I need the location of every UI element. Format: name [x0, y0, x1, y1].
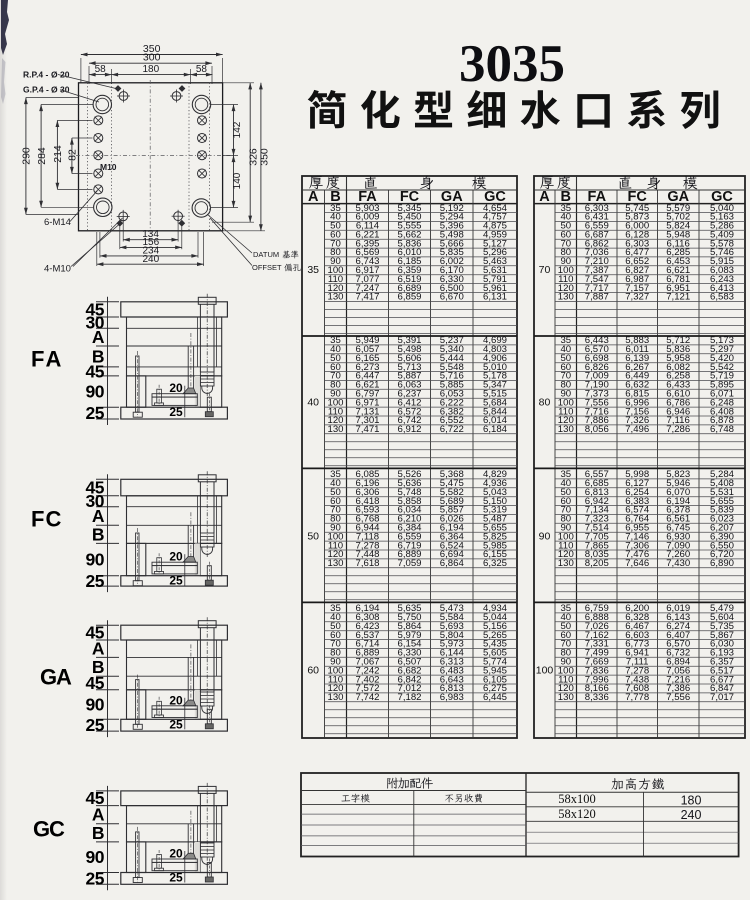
svg-text:8,336: 8,336: [585, 692, 609, 703]
svg-text:G: G: [40, 665, 57, 690]
svg-text:58x120: 58x120: [558, 807, 596, 821]
svg-text:290: 290: [21, 147, 33, 165]
svg-text:R.P.4 -: R.P.4 -: [23, 70, 49, 80]
svg-text:7,059: 7,059: [397, 558, 421, 569]
svg-text:7,646: 7,646: [625, 558, 649, 569]
svg-text:90: 90: [86, 847, 105, 867]
svg-text:25: 25: [169, 871, 183, 885]
svg-text:130: 130: [327, 558, 343, 569]
svg-text:G: G: [33, 817, 50, 842]
svg-text:130: 130: [327, 292, 343, 303]
svg-text:B: B: [92, 823, 104, 843]
svg-text:6,890: 6,890: [710, 558, 734, 569]
svg-text:7,887: 7,887: [585, 292, 609, 303]
svg-text:7,496: 7,496: [625, 424, 649, 435]
svg-text:A: A: [92, 506, 105, 526]
svg-text:25: 25: [86, 715, 105, 735]
svg-text:6,445: 6,445: [483, 692, 507, 703]
svg-text:82: 82: [67, 149, 79, 161]
svg-text:A: A: [539, 189, 550, 205]
svg-text:6,325: 6,325: [483, 558, 507, 569]
svg-text:214: 214: [52, 145, 64, 163]
svg-text:7,430: 7,430: [666, 558, 690, 569]
svg-text:90: 90: [86, 550, 105, 570]
svg-text:60: 60: [307, 665, 319, 677]
svg-text:F: F: [31, 507, 44, 532]
svg-text:7,556: 7,556: [666, 692, 690, 703]
svg-text:130: 130: [558, 692, 574, 703]
svg-text:6,859: 6,859: [397, 292, 421, 303]
svg-text:25: 25: [169, 574, 183, 588]
svg-text:6,670: 6,670: [440, 292, 464, 303]
svg-text:6-M14: 6-M14: [44, 217, 71, 228]
svg-text:6,912: 6,912: [397, 424, 421, 435]
svg-text:C: C: [46, 507, 62, 532]
svg-text:25: 25: [86, 571, 105, 591]
svg-text:6,864: 6,864: [440, 558, 465, 569]
svg-text:70: 70: [539, 264, 551, 276]
svg-text:300: 300: [143, 51, 161, 63]
svg-text:8,056: 8,056: [585, 424, 609, 435]
svg-text:F: F: [31, 347, 44, 372]
svg-text:25: 25: [86, 403, 105, 423]
svg-text:6,131: 6,131: [483, 292, 507, 303]
svg-text:20: 20: [169, 550, 183, 564]
svg-text:6,983: 6,983: [440, 692, 464, 703]
svg-text:130: 130: [558, 558, 574, 569]
svg-text:6,583: 6,583: [710, 292, 734, 303]
svg-text:45: 45: [86, 673, 105, 693]
svg-text:25: 25: [169, 717, 183, 731]
svg-text:M10: M10: [100, 162, 117, 172]
svg-text:350: 350: [258, 148, 270, 166]
svg-text:A: A: [56, 665, 72, 690]
svg-text:A: A: [92, 639, 105, 659]
svg-text:A: A: [46, 347, 62, 372]
svg-text:7,417: 7,417: [355, 292, 379, 303]
svg-text:240: 240: [142, 254, 159, 265]
svg-text:20: 20: [169, 693, 183, 707]
svg-text:90: 90: [86, 695, 105, 715]
svg-text:130: 130: [327, 424, 343, 435]
svg-text:80: 80: [539, 397, 551, 409]
svg-text:130: 130: [558, 292, 574, 303]
svg-text:4-M10: 4-M10: [44, 264, 71, 275]
svg-text:180: 180: [142, 64, 159, 75]
svg-text:6,184: 6,184: [483, 424, 508, 435]
svg-text:6,748: 6,748: [710, 424, 734, 435]
svg-text:180: 180: [681, 794, 702, 808]
svg-text:8,205: 8,205: [585, 558, 609, 569]
svg-text:58x100: 58x100: [558, 792, 596, 806]
svg-text:20: 20: [169, 847, 183, 861]
svg-text:130: 130: [558, 424, 574, 435]
svg-text:58: 58: [95, 64, 107, 75]
svg-text:7,017: 7,017: [710, 692, 734, 703]
svg-text:7,778: 7,778: [625, 692, 649, 703]
svg-text:A: A: [92, 327, 105, 347]
svg-text:7,182: 7,182: [397, 692, 421, 703]
svg-text:25: 25: [169, 405, 183, 419]
svg-text:142: 142: [232, 121, 243, 138]
svg-text:7,121: 7,121: [666, 292, 690, 303]
svg-text:50: 50: [307, 531, 319, 543]
svg-text:45: 45: [86, 361, 105, 381]
svg-text:A: A: [308, 189, 319, 205]
svg-text:140: 140: [232, 172, 243, 189]
svg-text:7,286: 7,286: [666, 424, 690, 435]
svg-text:7,742: 7,742: [355, 692, 379, 703]
svg-text:7,618: 7,618: [355, 558, 379, 569]
svg-text:58: 58: [196, 64, 208, 75]
svg-text:B: B: [92, 524, 104, 544]
svg-text:7,471: 7,471: [355, 424, 379, 435]
svg-text:G.P.4 -: G.P.4 -: [23, 85, 49, 95]
svg-text:40: 40: [307, 397, 319, 409]
svg-text:A: A: [92, 805, 105, 825]
svg-text:20: 20: [169, 381, 183, 395]
svg-text:284: 284: [36, 147, 48, 165]
svg-text:130: 130: [327, 692, 343, 703]
svg-text:DATUM: DATUM: [253, 250, 279, 259]
svg-text:7,327: 7,327: [625, 292, 649, 303]
svg-text:25: 25: [86, 868, 105, 888]
svg-text:90: 90: [86, 382, 105, 402]
svg-text:6,722: 6,722: [440, 424, 464, 435]
svg-text:90: 90: [539, 531, 551, 543]
svg-text:100: 100: [536, 665, 554, 677]
svg-text:Ø 20: Ø 20: [51, 70, 70, 80]
svg-text:C: C: [49, 817, 65, 842]
svg-text:240: 240: [681, 808, 702, 822]
svg-text:35: 35: [307, 264, 319, 276]
svg-text:OFFSET: OFFSET: [252, 263, 282, 272]
